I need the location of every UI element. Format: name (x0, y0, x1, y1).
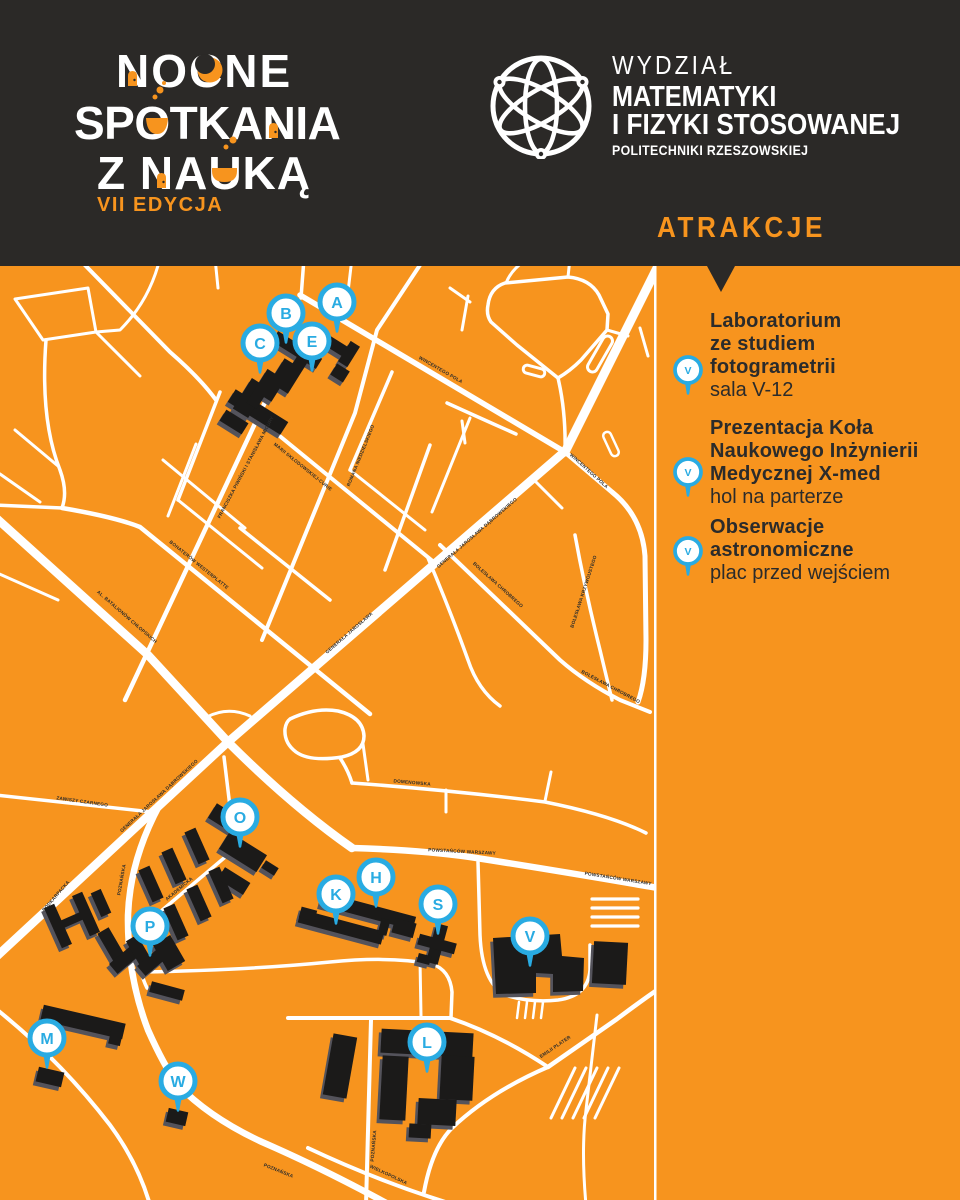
svg-text:V: V (684, 365, 691, 377)
svg-text:K: K (330, 887, 342, 904)
svg-text:V: V (684, 467, 691, 479)
svg-text:M: M (40, 1031, 53, 1048)
svg-text:S: S (433, 897, 444, 914)
svg-text:W: W (170, 1074, 186, 1091)
svg-text:H: H (370, 870, 382, 887)
svg-text:P: P (145, 919, 156, 936)
svg-text:A: A (331, 295, 343, 312)
svg-text:V: V (525, 929, 536, 946)
svg-text:E: E (307, 334, 318, 351)
svg-text:L: L (422, 1035, 432, 1052)
svg-text:V: V (684, 546, 691, 558)
svg-text:B: B (280, 306, 292, 323)
svg-text:O: O (234, 810, 246, 827)
svg-text:C: C (254, 336, 266, 353)
